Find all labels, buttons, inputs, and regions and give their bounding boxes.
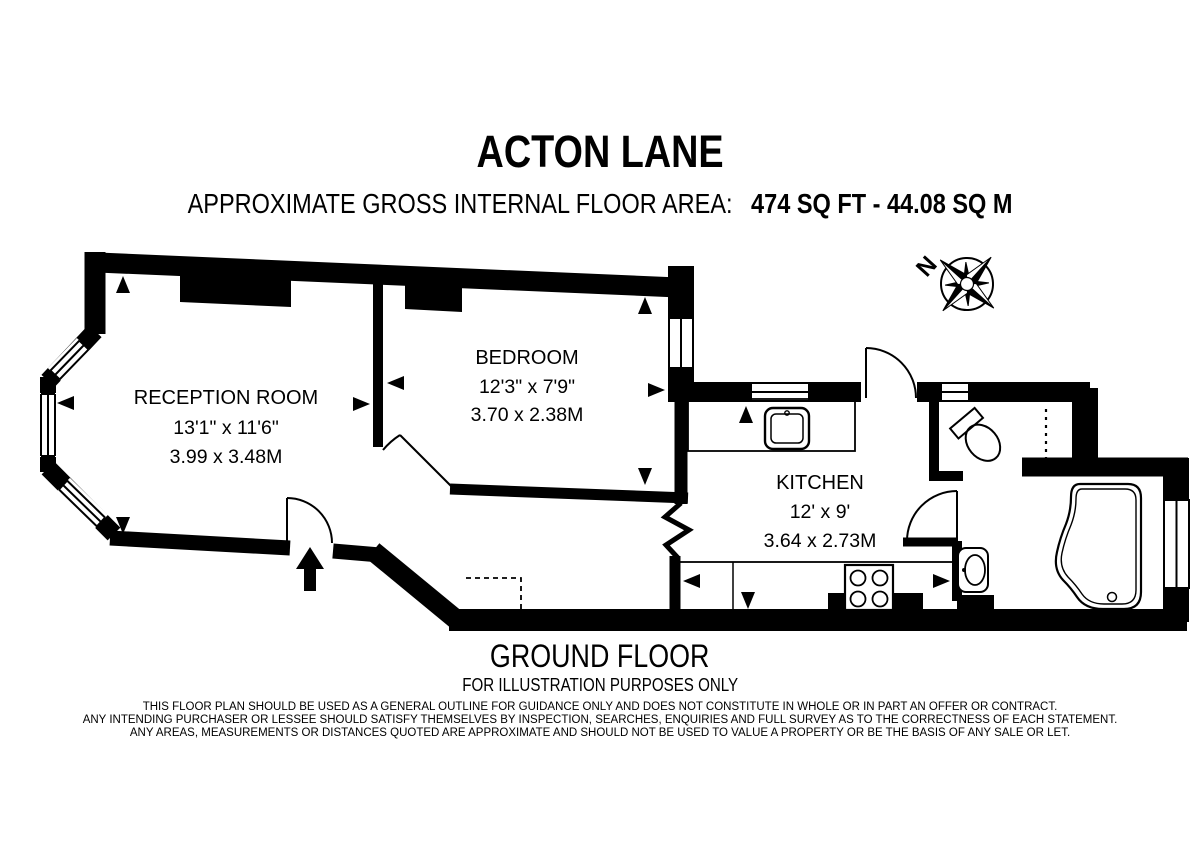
wall-reception-bottom <box>110 538 290 548</box>
bay-window-left-icon <box>41 393 55 457</box>
arrow-kitchen-down-icon <box>741 592 755 609</box>
floor-name: GROUND FLOOR <box>0 638 1200 675</box>
compass-rose-icon: N <box>902 220 1018 334</box>
hob-flank-right <box>893 593 909 612</box>
bedroom-imperial: 12'3" x 7'9" <box>479 376 575 398</box>
arrow-reception-right-icon <box>353 397 370 411</box>
disclaimer-line-3: ANY AREAS, MEASUREMENTS OR DISTANCES QUO… <box>0 727 1200 740</box>
toilet-icon <box>950 408 1008 468</box>
wall-bedroom-bottom <box>450 489 688 498</box>
room-labels: RECEPTION ROOM 13'1" x 11'6" 3.99 x 3.48… <box>134 347 877 552</box>
kitchen-imperial: 12' x 9' <box>790 501 851 523</box>
wall-hall-diagonal <box>373 551 458 621</box>
kitchen-name: KITCHEN <box>776 472 864 494</box>
arrow-bedroom-right-icon <box>648 383 665 397</box>
arrow-reception-left-icon <box>57 396 74 410</box>
compass-north-label: N <box>911 251 943 282</box>
hall-cupboard-dashed <box>466 578 521 611</box>
disclaimer-line-2: ANY INTENDING PURCHASER OR LESSEE SHOULD… <box>0 714 1200 727</box>
kitchen-rear-door-arc <box>866 348 916 398</box>
illustration-note: FOR ILLUSTRATION PURPOSES ONLY <box>0 675 1200 696</box>
doors <box>287 348 957 543</box>
kitchen-sink-icon <box>765 408 809 449</box>
wall-step-basin <box>957 595 994 614</box>
bay-window-lower-icon <box>59 481 105 527</box>
wc-window-icon <box>941 383 969 401</box>
arrow-kitchen-up-icon <box>739 406 753 423</box>
bedroom-name: BEDROOM <box>475 347 578 369</box>
chimney-breast-reception <box>180 270 291 307</box>
hob-flank-left <box>828 593 845 612</box>
bathroom-window-icon <box>1164 500 1189 588</box>
reception-room-imperial: 13'1" x 11'6" <box>173 417 279 439</box>
bathtub-icon <box>1056 484 1141 609</box>
bay-window-upper-icon <box>50 341 88 380</box>
bathroom-fixtures <box>950 408 1141 609</box>
bedroom-metric: 3.70 x 2.38M <box>471 404 584 426</box>
arrow-bedroom-down-icon <box>638 468 652 485</box>
arrow-kitchen-left-icon <box>683 574 700 588</box>
measurement-arrows <box>57 276 950 609</box>
wall-top <box>86 262 690 288</box>
break-line-zigzag <box>665 503 689 558</box>
entrance-door-arc <box>287 498 332 543</box>
disclaimer-line-1: THIS FLOOR PLAN SHOULD BE USED AS A GENE… <box>0 701 1200 714</box>
washbasin-icon <box>958 548 988 592</box>
kitchen-metric: 3.64 x 2.73M <box>764 530 877 552</box>
bedroom-door-arc <box>383 435 452 487</box>
arrow-kitchen-right-icon <box>933 574 950 588</box>
chimney-breast-bedroom <box>405 282 462 312</box>
floorplan-page: ACTON LANE APPROXIMATE GROSS INTERNAL FL… <box>0 0 1200 848</box>
entrance-arrow-icon <box>296 547 324 591</box>
arrow-bedroom-left-icon <box>387 376 404 390</box>
arrow-bedroom-up-icon <box>638 297 652 314</box>
arrow-reception-up-icon <box>116 276 130 293</box>
reception-room-metric: 3.99 x 3.48M <box>170 446 283 468</box>
bathroom-door-arc <box>907 491 957 541</box>
bedroom-window-icon <box>669 318 693 368</box>
hob-icon <box>845 565 893 610</box>
reception-room-name: RECEPTION ROOM <box>134 387 318 409</box>
